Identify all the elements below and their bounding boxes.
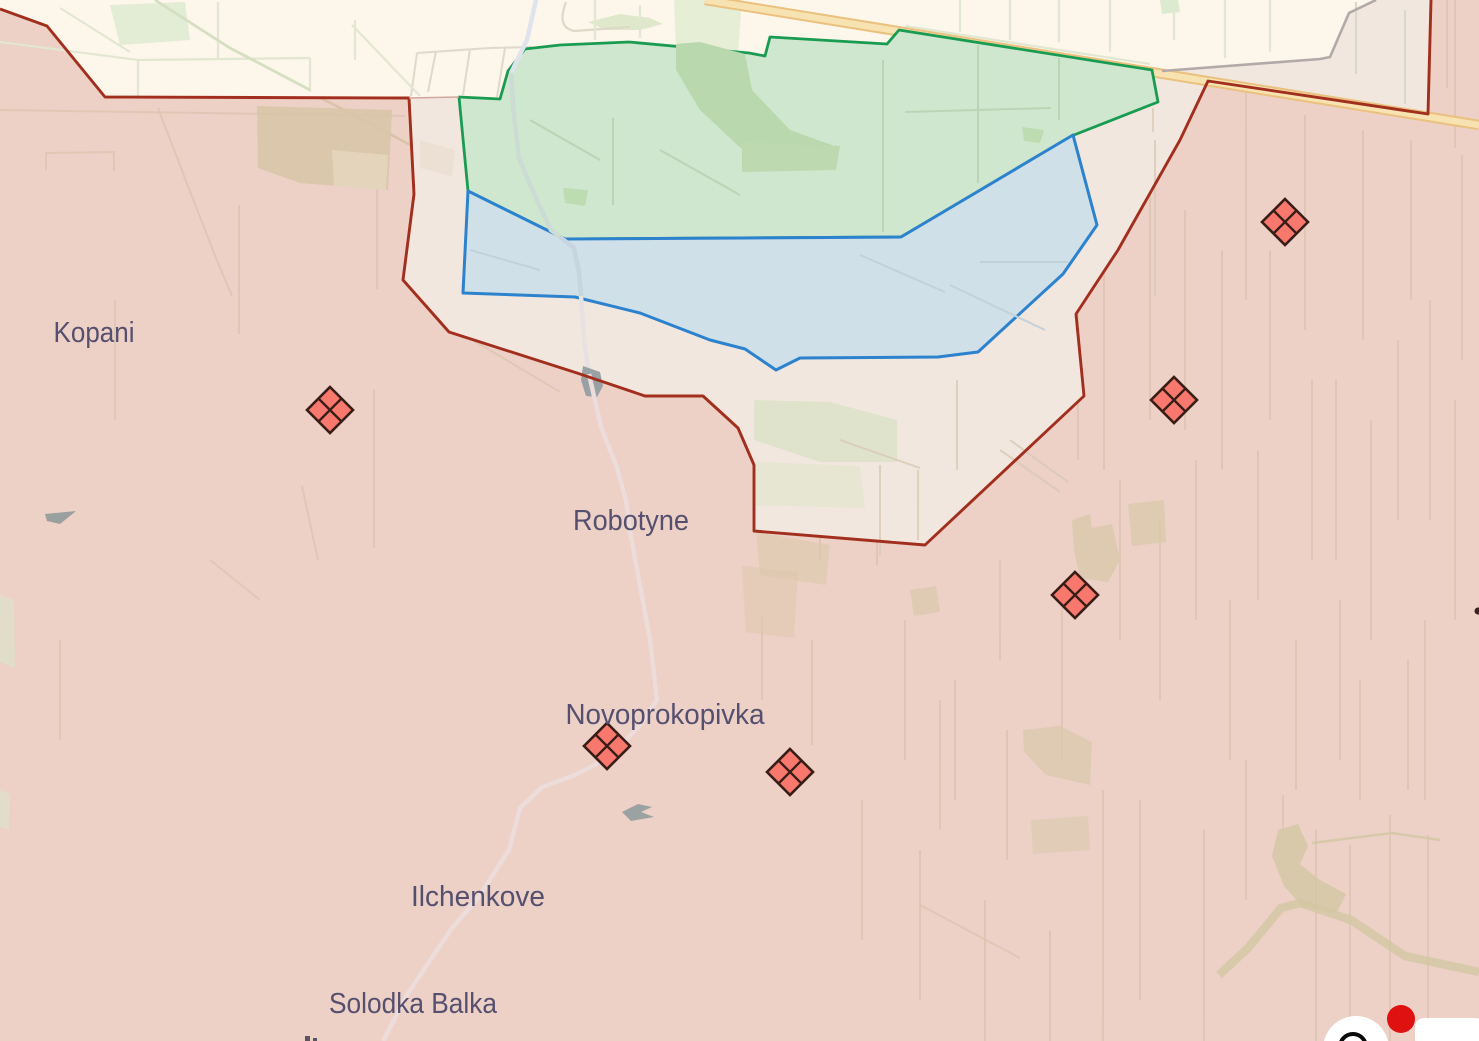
svg-text:Solodka Balka: Solodka Balka [329, 988, 497, 1020]
svg-text:Robotyne: Robotyne [573, 505, 689, 537]
svg-text:Ilchenkove: Ilchenkove [411, 881, 545, 913]
svg-text:Kopani: Kopani [54, 317, 135, 349]
svg-text:Novoprokopivka: Novoprokopivka [566, 699, 765, 731]
